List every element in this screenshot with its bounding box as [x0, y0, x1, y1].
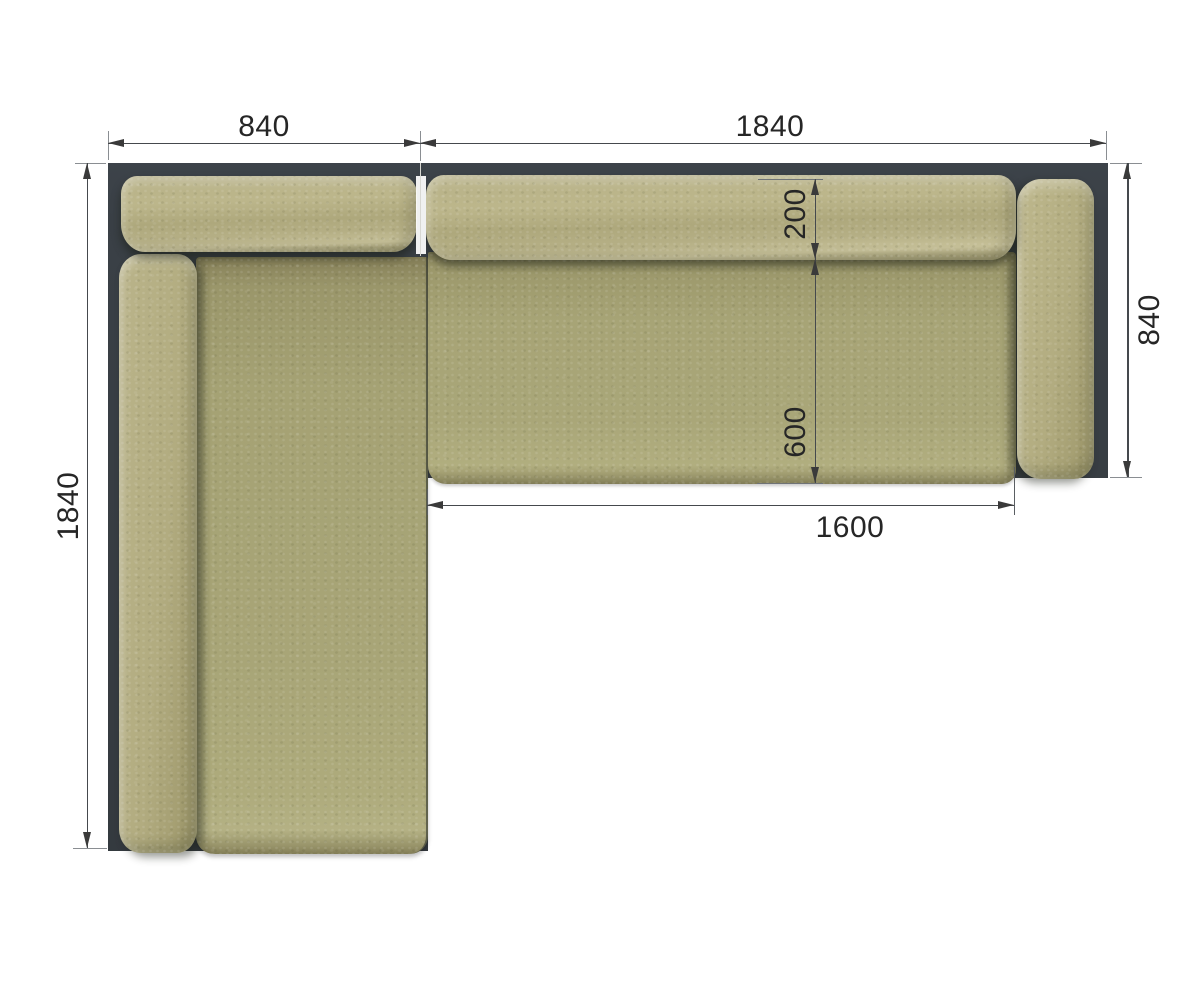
- dim-label: 1600: [816, 513, 885, 543]
- arrow-up-icon: [83, 163, 91, 179]
- dim-label: 840: [1135, 294, 1165, 346]
- arrow-right-icon: [404, 139, 420, 147]
- main-backrest-cushion: [426, 175, 1016, 260]
- arrow-right-icon: [998, 501, 1014, 509]
- arrow-left-icon: [427, 501, 443, 509]
- arrow-down-icon: [1123, 461, 1131, 477]
- dimension-line: [87, 163, 89, 848]
- arrow-down-icon: [811, 243, 819, 259]
- dim-label: 1840: [54, 472, 84, 541]
- arrow-up-icon: [811, 259, 819, 275]
- backrest-cushion-gap: [416, 176, 426, 254]
- arrow-left-icon: [108, 139, 124, 147]
- left-backrest-cushion: [121, 176, 417, 252]
- extension-line: [75, 163, 106, 164]
- arrow-left-icon: [420, 139, 436, 147]
- chaise-seat-cushion: [196, 257, 428, 854]
- arrow-right-icon: [1090, 139, 1106, 147]
- right-armrest-cushion: [1017, 179, 1094, 479]
- arrow-down-icon: [811, 467, 819, 483]
- dim-label: 840: [238, 112, 290, 142]
- arrow-up-icon: [1123, 163, 1131, 179]
- dim-label: 1840: [736, 112, 805, 142]
- dim-label: 200: [781, 188, 811, 240]
- left-armrest-cushion: [119, 254, 197, 853]
- main-seat-cushion: [428, 252, 1016, 484]
- extension-line: [420, 163, 421, 256]
- sofa-top-view-drawing: 840 1840 1840 840 200: [0, 0, 1200, 1000]
- dimension-line: [1127, 163, 1129, 477]
- arrow-down-icon: [83, 832, 91, 848]
- dimension-line: [815, 259, 817, 483]
- dim-label: 600: [781, 406, 811, 458]
- dimension-line: [427, 505, 1014, 507]
